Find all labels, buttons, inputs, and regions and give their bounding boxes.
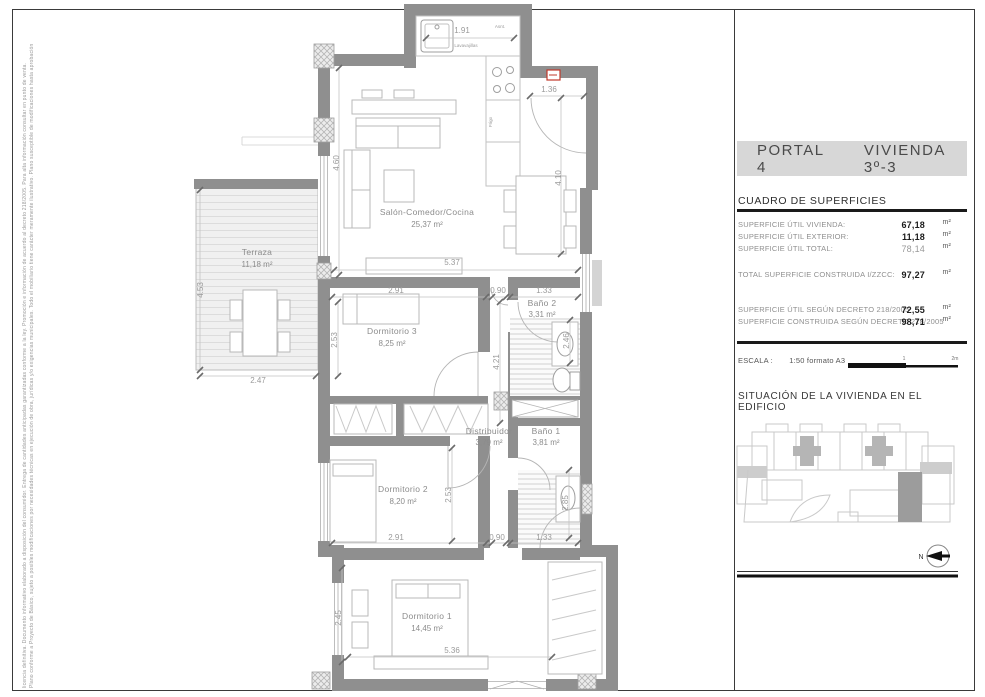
kitchen-island xyxy=(352,100,456,114)
surface-label: SUPERFICIE ÚTIL VIVIENDA: xyxy=(738,220,845,229)
room-area-distribuidor: 3,79 m² xyxy=(475,438,502,447)
exterior-context-lines xyxy=(242,137,318,145)
chair xyxy=(504,190,516,212)
room-label-dorm1: Dormitorio 1 xyxy=(402,611,452,621)
room-label-salon: Salón-Comedor/Cocina xyxy=(380,207,474,217)
room-area-terraza: 11,18 m² xyxy=(242,260,273,269)
surface-label: SUPERFICIE ÚTIL TOTAL: xyxy=(738,244,833,253)
entry-detail xyxy=(547,70,560,80)
surface-value: 78,14 xyxy=(901,244,925,254)
nightstand xyxy=(352,590,368,616)
side-table xyxy=(384,170,414,202)
dim-dorm1-w: 5.36 xyxy=(444,646,460,655)
dishwasher-label: Lavavajillas xyxy=(454,43,478,48)
dim-bano1-w: 1.33 xyxy=(536,533,552,542)
dim-dorm2-w: 2.91 xyxy=(388,533,404,542)
bench xyxy=(374,656,488,669)
closet xyxy=(334,404,392,434)
room-area-dorm1: 14,45 m² xyxy=(411,624,443,633)
surface-label: SUPERFICIE ÚTIL EXTERIOR: xyxy=(738,232,849,241)
surface-unit: m² xyxy=(942,231,951,238)
surface-value: 72,55 xyxy=(901,305,925,315)
sofa-chaise xyxy=(344,150,370,228)
escala-row: ESCALA : 1:50 formato A3 xyxy=(738,356,845,365)
dim-hall-h: 4.21 xyxy=(492,354,501,370)
surface-unit: m² xyxy=(942,219,951,226)
dim-entry-w: 1.36 xyxy=(541,85,557,94)
entry-door-arc xyxy=(531,98,586,153)
surface-label: TOTAL SUPERFICIE CONSTRUIDA I/ZZCC: xyxy=(738,270,895,279)
bed-dorm3 xyxy=(343,294,419,324)
chair xyxy=(504,226,516,248)
title-band: PORTAL 4 VIVIENDA 3º-3 xyxy=(737,141,967,176)
surface-unit: m² xyxy=(942,304,951,311)
room-area-salon: 25,37 m² xyxy=(411,220,443,229)
dim-bano1-h: 2.85 xyxy=(561,495,570,511)
escala-value: 1:50 formato A3 xyxy=(789,356,845,365)
dim-bano2-h: 2.46 xyxy=(562,333,571,349)
room-label-bano2: Baño 2 xyxy=(528,298,557,308)
surface-value: 67,18 xyxy=(901,220,925,230)
surface-unit: m² xyxy=(942,316,951,323)
terrace-chair xyxy=(278,300,290,320)
dim-salon-right-h: 4.10 xyxy=(554,170,563,186)
surface-row: SUPERFICIE ÚTIL TOTAL: 78,14 m² xyxy=(738,244,967,256)
dim-hall-bottom-w: 0.90 xyxy=(489,533,505,542)
chair xyxy=(564,226,576,248)
terrace-table xyxy=(243,290,277,356)
stool xyxy=(362,90,382,98)
room-label-bano1: Baño 1 xyxy=(532,426,561,436)
terrace-chair xyxy=(278,332,290,352)
chair xyxy=(564,190,576,212)
vivienda-title: VIVIENDA 3º-3 xyxy=(864,142,967,176)
surface-row: SUPERFICIE ÚTIL VIVIENDA: 67,18 m² xyxy=(738,220,967,232)
surface-unit: m² xyxy=(942,269,951,276)
escala-label: ESCALA : xyxy=(738,356,773,365)
dim-dorm1-h: 2.45 xyxy=(334,610,343,626)
dim-dorm3-h: 2.53 xyxy=(330,332,339,348)
surface-label: SUPERFICIE ÚTIL SEGÚN DECRETO 218/2005 xyxy=(738,305,909,314)
room-label-dorm3: Dormitorio 3 xyxy=(367,326,417,336)
dim-dorm3-w: 2.91 xyxy=(388,286,404,295)
room-label-distribuidor: Distribuidor xyxy=(466,426,513,436)
room-area-dorm3: 8,25 m² xyxy=(378,339,405,348)
dim-kitchen-w: 1.91 xyxy=(454,26,470,35)
surface-value: 11,18 xyxy=(902,232,925,242)
surfaces-title: CUADRO DE SUPERFICIES xyxy=(738,195,887,207)
room-label-terraza: Terraza xyxy=(242,247,272,257)
dim-terraza-w: 2.47 xyxy=(250,376,266,385)
nightstand xyxy=(352,622,368,648)
dim-dorm2-h: 2.53 xyxy=(444,487,453,503)
surface-row: SUPERFICIE ÚTIL EXTERIOR: 11,18 m² xyxy=(738,232,967,244)
kitchen-top-label: Asnt. xyxy=(495,24,505,29)
surfaces-title-rule xyxy=(737,209,967,212)
dining-table xyxy=(516,176,566,254)
room-area-dorm2: 8,20 m² xyxy=(389,497,416,506)
plan-sheet: Plano conforme a Proyecto de Básico, suj… xyxy=(0,0,985,697)
portal-title: PORTAL 4 xyxy=(757,142,828,176)
room-area-bano1: 3,81 m² xyxy=(532,438,559,447)
terrace-chair xyxy=(230,332,242,352)
dim-bano2-w: 1.33 xyxy=(536,286,552,295)
title-block: PORTAL 4 VIVIENDA 3º-3 CUADRO DE SUPERFI… xyxy=(737,0,967,697)
surface-row: TOTAL SUPERFICIE CONSTRUIDA I/ZZCC: 97,2… xyxy=(738,270,967,282)
toilet-bano2 xyxy=(553,368,571,392)
dorm3-door-arc xyxy=(434,352,478,396)
situacion-title: SITUACIÓN DE LA VIVIENDA EN EL EDIFICIO xyxy=(738,391,967,413)
room-area-bano2: 3,31 m² xyxy=(528,310,555,319)
surface-row: SUPERFICIE CONSTRUIDA SEGÚN DECRETO 218/… xyxy=(738,317,967,329)
terrace-chair xyxy=(230,300,242,320)
dim-salon-left-h: 4.60 xyxy=(332,155,341,171)
dim-hall-top-w: 0.90 xyxy=(490,286,506,295)
surface-value: 97,27 xyxy=(901,270,925,280)
surface-value: 98,71 xyxy=(901,317,925,327)
dim-salon-w: 5.37 xyxy=(444,258,460,267)
stool xyxy=(394,90,414,98)
surfaces-bottom-rule xyxy=(737,341,967,344)
fridge-label: Frigo xyxy=(488,116,493,127)
surface-row: SUPERFICIE ÚTIL SEGÚN DECRETO 218/2005 7… xyxy=(738,305,967,317)
dim-terraza-h: 4.53 xyxy=(196,282,205,298)
surface-unit: m² xyxy=(942,243,951,250)
room-label-dorm2: Dormitorio 2 xyxy=(378,484,428,494)
